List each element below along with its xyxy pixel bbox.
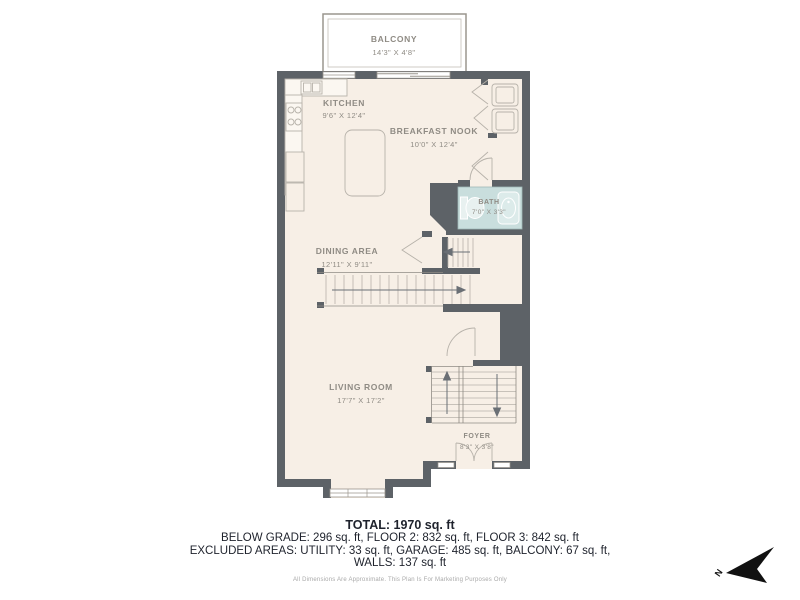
dining-area-dims: 12'11" X 9'11" [321,260,372,269]
kitchen-dims: 9'6" X 12'4" [322,111,365,120]
kitchen-sink-basin-1 [304,83,312,92]
floor-plan-drawing: BALCONY 14'3" X 4'8" [0,0,800,600]
kitchen-label: KITCHEN [323,98,365,108]
kitchen-sink-basin-2 [313,83,321,92]
bath-label: BATH [478,199,499,206]
wall-left [277,71,285,487]
bath-top-wall-left [458,180,470,187]
bathroom: BATH 7'0" X 3'3" [458,187,522,229]
living-room-label: LIVING ROOM [329,382,393,392]
bath-bottom-wall [446,229,530,235]
dining-area-label: DINING AREA [316,246,378,256]
bath-top-wall-right [492,180,530,187]
total-area-text: TOTAL: 1970 sq. ft [0,519,800,532]
breakfast-nook-dims: 10'0" X 12'4" [410,140,458,149]
balcony-dims: 14'3" X 4'8" [372,48,415,57]
closet-right-wall-block [500,304,522,366]
balcony-label: BALCONY [371,34,417,44]
bath-sink-faucet [507,201,509,203]
closet-bottom-wall [473,360,502,366]
kitchen-island [345,130,385,196]
floor-plan-page: BALCONY 14'3" X 4'8" [0,0,800,600]
foyer-sidelite-right [494,463,510,468]
disclaimer-text: All Dimensions Are Approximate. This Pla… [0,577,800,583]
nook-wall-stub-mid [488,133,497,138]
foyer-sidelite-left [438,463,454,468]
foyer-door-opening [456,461,492,469]
foyer-dims: 8'3" X 3'8" [460,444,494,451]
walls-area-text: WALLS: 137 sq. ft [0,557,800,570]
stair-top-wall-stub [422,231,432,237]
floors-area-text: BELOW GRADE: 296 sq. ft, FLOOR 2: 832 sq… [0,532,800,545]
stair-mid-wall [422,268,480,274]
refrigerator-icon [286,152,304,182]
breakfast-nook-label: BREAKFAST NOOK [390,126,478,136]
bay-window-right-stub [385,479,393,498]
chair-cushion-2 [496,112,514,130]
living-room-dims: 17'7" X 17'2" [337,396,385,405]
excluded-areas-text: EXCLUDED AREAS: UTILITY: 33 sq. ft, GARA… [0,545,800,558]
balcony: BALCONY 14'3" X 4'8" [323,14,466,72]
foyer-label: FOYER [463,433,490,440]
wall-bottom-left [277,479,330,487]
stair-stub-left-bottom [317,302,324,308]
area-summary: TOTAL: 1970 sq. ft BELOW GRADE: 296 sq. … [0,519,800,583]
wall-step-connector [423,461,431,487]
pantry-cabinet [286,183,304,211]
bath-dims: 7'0" X 3'3" [472,209,506,216]
balcony-sliding-door [377,72,450,78]
chair-cushion-1 [496,87,514,103]
wall-right [522,71,530,469]
